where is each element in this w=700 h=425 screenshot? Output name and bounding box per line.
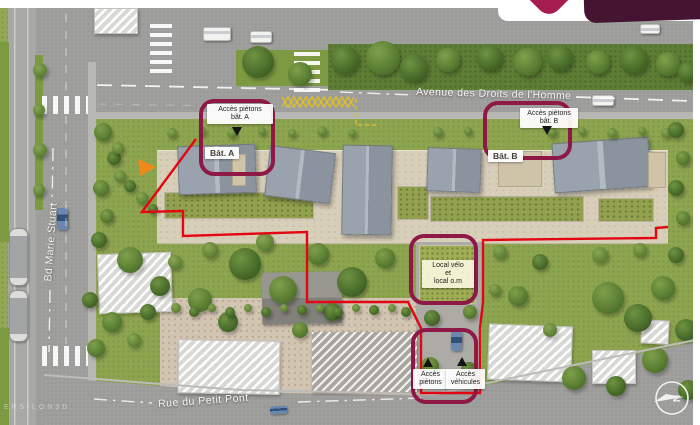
callout-line: Local vélo [425, 262, 471, 270]
building-label-b: Bât. B [488, 150, 523, 162]
compass-north-letter: N [670, 395, 681, 403]
callout-line: véhicules [449, 379, 482, 387]
highlight-street-access [411, 328, 478, 404]
callout-bike-room: Local vélo et local o.m [422, 260, 474, 288]
callout-vehicle-access: Accès véhicules [446, 369, 485, 389]
arrow-up-icon [423, 358, 433, 367]
site-boundary-line [142, 139, 668, 393]
arrow-up-icon [457, 357, 467, 366]
callout-line: Accès piétons [210, 106, 270, 114]
callout-line: Accès piétons [523, 110, 575, 118]
compass-icon: N [654, 382, 688, 414]
callout-line: piétons [416, 379, 445, 387]
arrow-down-icon [232, 127, 242, 136]
callout-line: bât. A [210, 114, 270, 122]
curb-line [44, 339, 700, 394]
rue-name-line [94, 399, 152, 403]
callout-line: bât. B [523, 118, 575, 126]
avenue-name-line [340, 92, 413, 95]
rue-name-line [298, 398, 424, 402]
orange-marker-icon [138, 159, 156, 176]
avenue-centerline [97, 85, 336, 90]
site-plan-canvas: N Accès piétons bât. A Accès piétons bât… [0, 0, 700, 425]
callout-line: Accès [416, 371, 445, 379]
callout-line: local o.m [425, 278, 471, 286]
callout-line: et [425, 270, 471, 278]
building-label-a: Bât. A [205, 147, 239, 159]
watermark: EPSILON3D [4, 404, 70, 411]
callout-pedestrian-access-a: Accès piétons bât. A [207, 104, 273, 124]
annotation-overlay: N [0, 0, 700, 425]
callout-pedestrian-access: Accès piétons [413, 369, 448, 389]
logo-corner-bar [583, 0, 700, 23]
yellow-bay-marking [356, 99, 376, 125]
arrow-down-icon [542, 126, 552, 135]
frame-right [693, 0, 700, 425]
callout-line: Accès [449, 371, 482, 379]
avenue-centerline [576, 97, 690, 101]
